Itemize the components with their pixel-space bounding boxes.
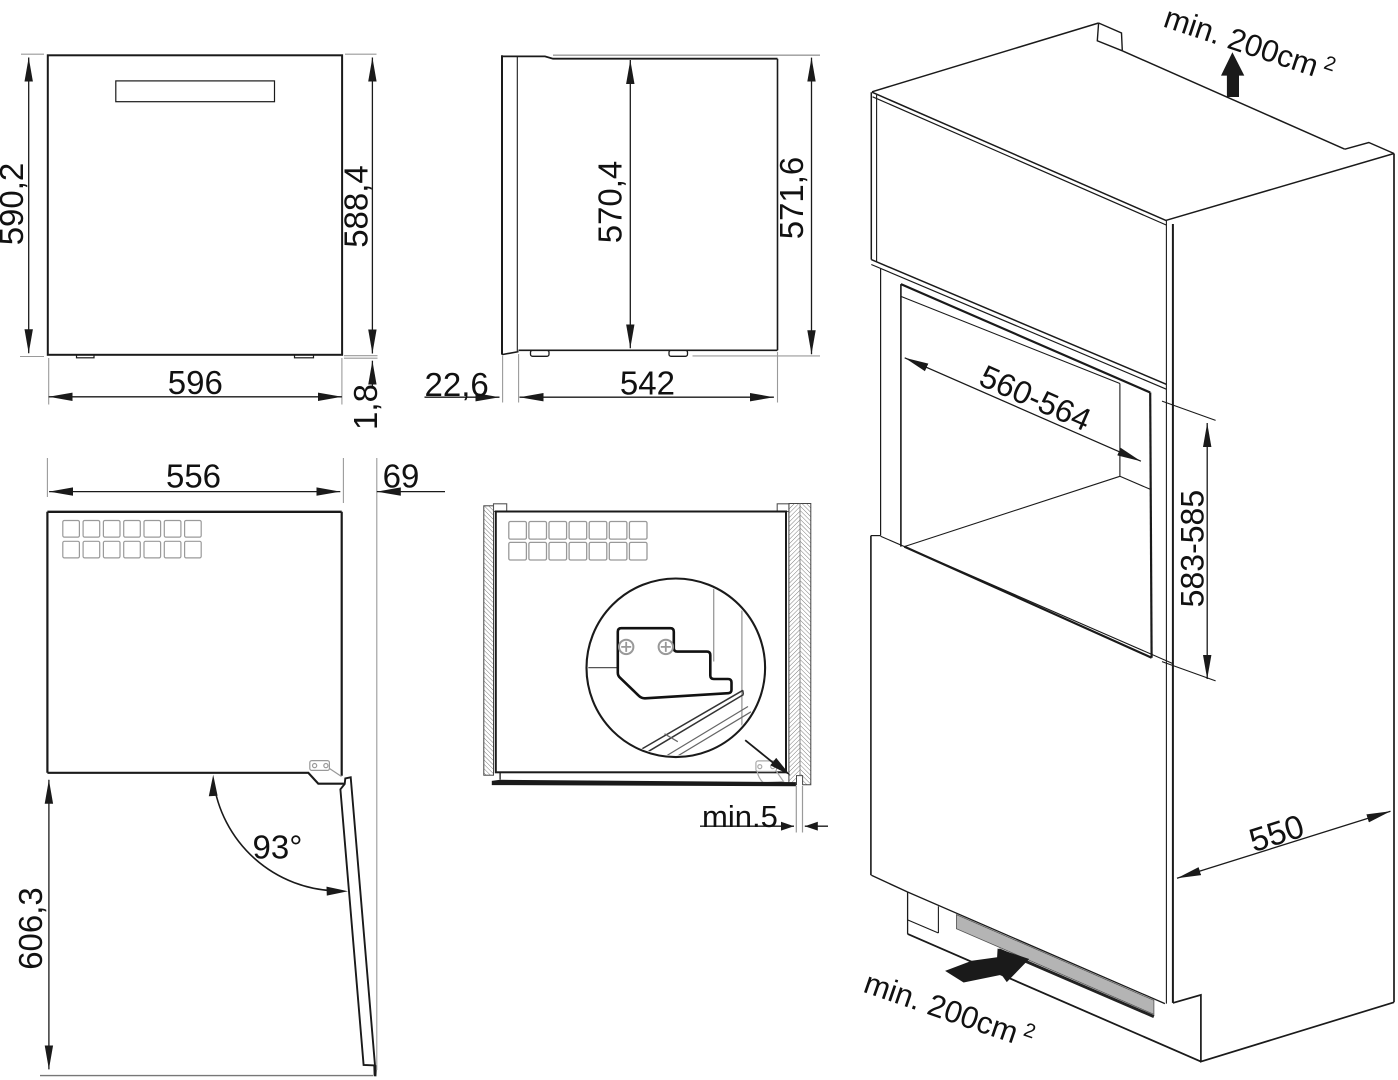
svg-text:69: 69	[383, 457, 420, 494]
svg-text:min.5: min.5	[702, 799, 778, 834]
svg-text:542: 542	[620, 364, 675, 401]
svg-text:590,2: 590,2	[0, 163, 30, 246]
svg-text:588,4: 588,4	[337, 165, 374, 248]
svg-text:606,3: 606,3	[12, 887, 49, 970]
svg-text:550: 550	[1245, 807, 1309, 859]
svg-text:570,4: 570,4	[591, 161, 628, 244]
svg-text:min. 200cm 2: min. 200cm 2	[1160, 0, 1339, 89]
svg-text:596: 596	[168, 364, 223, 401]
svg-text:583-585: 583-585	[1175, 490, 1211, 607]
svg-text:571,6: 571,6	[773, 157, 810, 240]
svg-text:1,8: 1,8	[347, 384, 384, 430]
svg-text:556: 556	[166, 457, 221, 494]
svg-text:22,6: 22,6	[425, 366, 489, 403]
svg-text:560-564: 560-564	[974, 358, 1096, 438]
svg-text:93°: 93°	[253, 829, 303, 866]
